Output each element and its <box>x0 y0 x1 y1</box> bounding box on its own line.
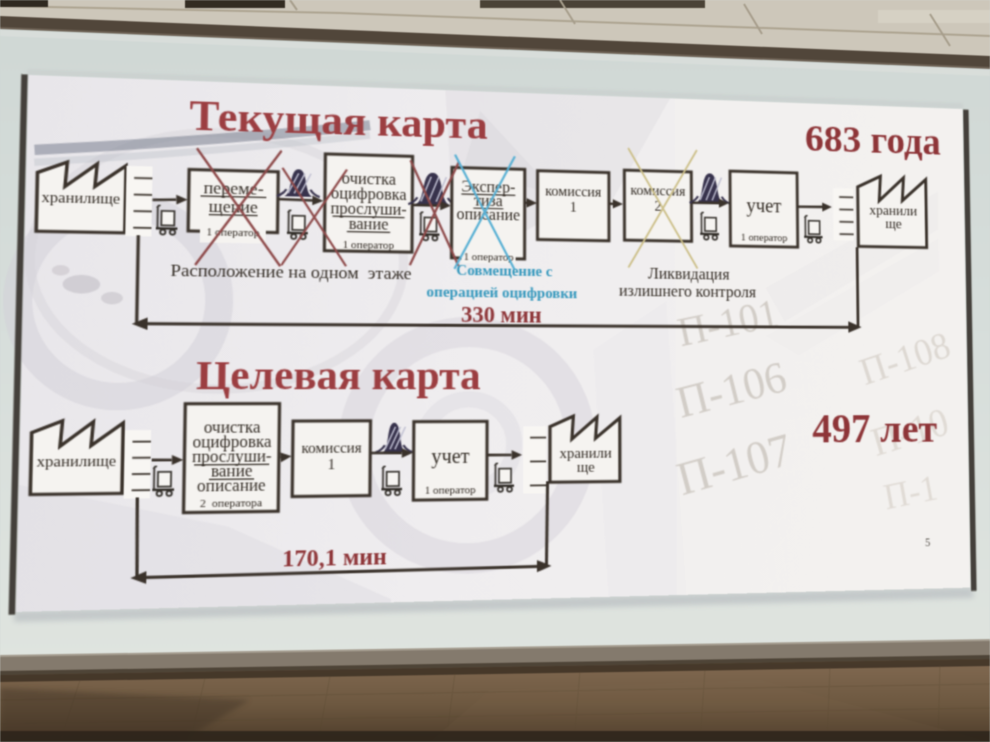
svg-text:Совмещение с: Совмещение с <box>456 263 552 280</box>
svg-text:Целевая карта: Целевая карта <box>196 351 481 398</box>
svg-text:ще: ще <box>577 460 595 476</box>
svg-text:операцией оцифровки: операцией оцифровки <box>426 284 577 302</box>
svg-text:излишнего контроля: излишнего контроля <box>619 282 756 302</box>
svg-text:ще: ще <box>885 217 902 232</box>
svg-text:330 мин: 330 мин <box>461 302 542 328</box>
svg-text:Текущая карта: Текущая карта <box>189 92 487 148</box>
svg-text:5: 5 <box>925 536 930 549</box>
svg-text:497 лет: 497 лет <box>812 406 937 451</box>
svg-text:Ликвидация: Ликвидация <box>648 264 730 283</box>
svg-text:переме-: переме- <box>203 178 263 198</box>
svg-text:2 оператора: 2 оператора <box>200 496 263 510</box>
svg-text:хранилище: хранилище <box>37 453 117 470</box>
svg-text:170,1 мин: 170,1 мин <box>282 544 387 572</box>
svg-text:1 оператор: 1 оператор <box>741 231 788 244</box>
svg-text:комиссия: комиссия <box>301 440 361 457</box>
svg-text:комиссия: комиссия <box>545 184 601 201</box>
svg-text:1 оператор: 1 оператор <box>342 238 394 252</box>
svg-text:1 оператор: 1 оператор <box>425 483 476 497</box>
svg-text:1: 1 <box>328 457 336 473</box>
svg-text:описание: описание <box>197 476 266 495</box>
svg-text:Расположение на одном этаже: Расположение на одном этаже <box>170 261 411 284</box>
svg-text:хранилище: хранилище <box>41 189 120 207</box>
svg-text:вание: вание <box>349 215 389 234</box>
svg-text:683 года: 683 года <box>805 116 941 163</box>
svg-text:учет: учет <box>746 195 782 217</box>
svg-text:учет: учет <box>431 445 470 468</box>
svg-text:1: 1 <box>570 200 577 216</box>
